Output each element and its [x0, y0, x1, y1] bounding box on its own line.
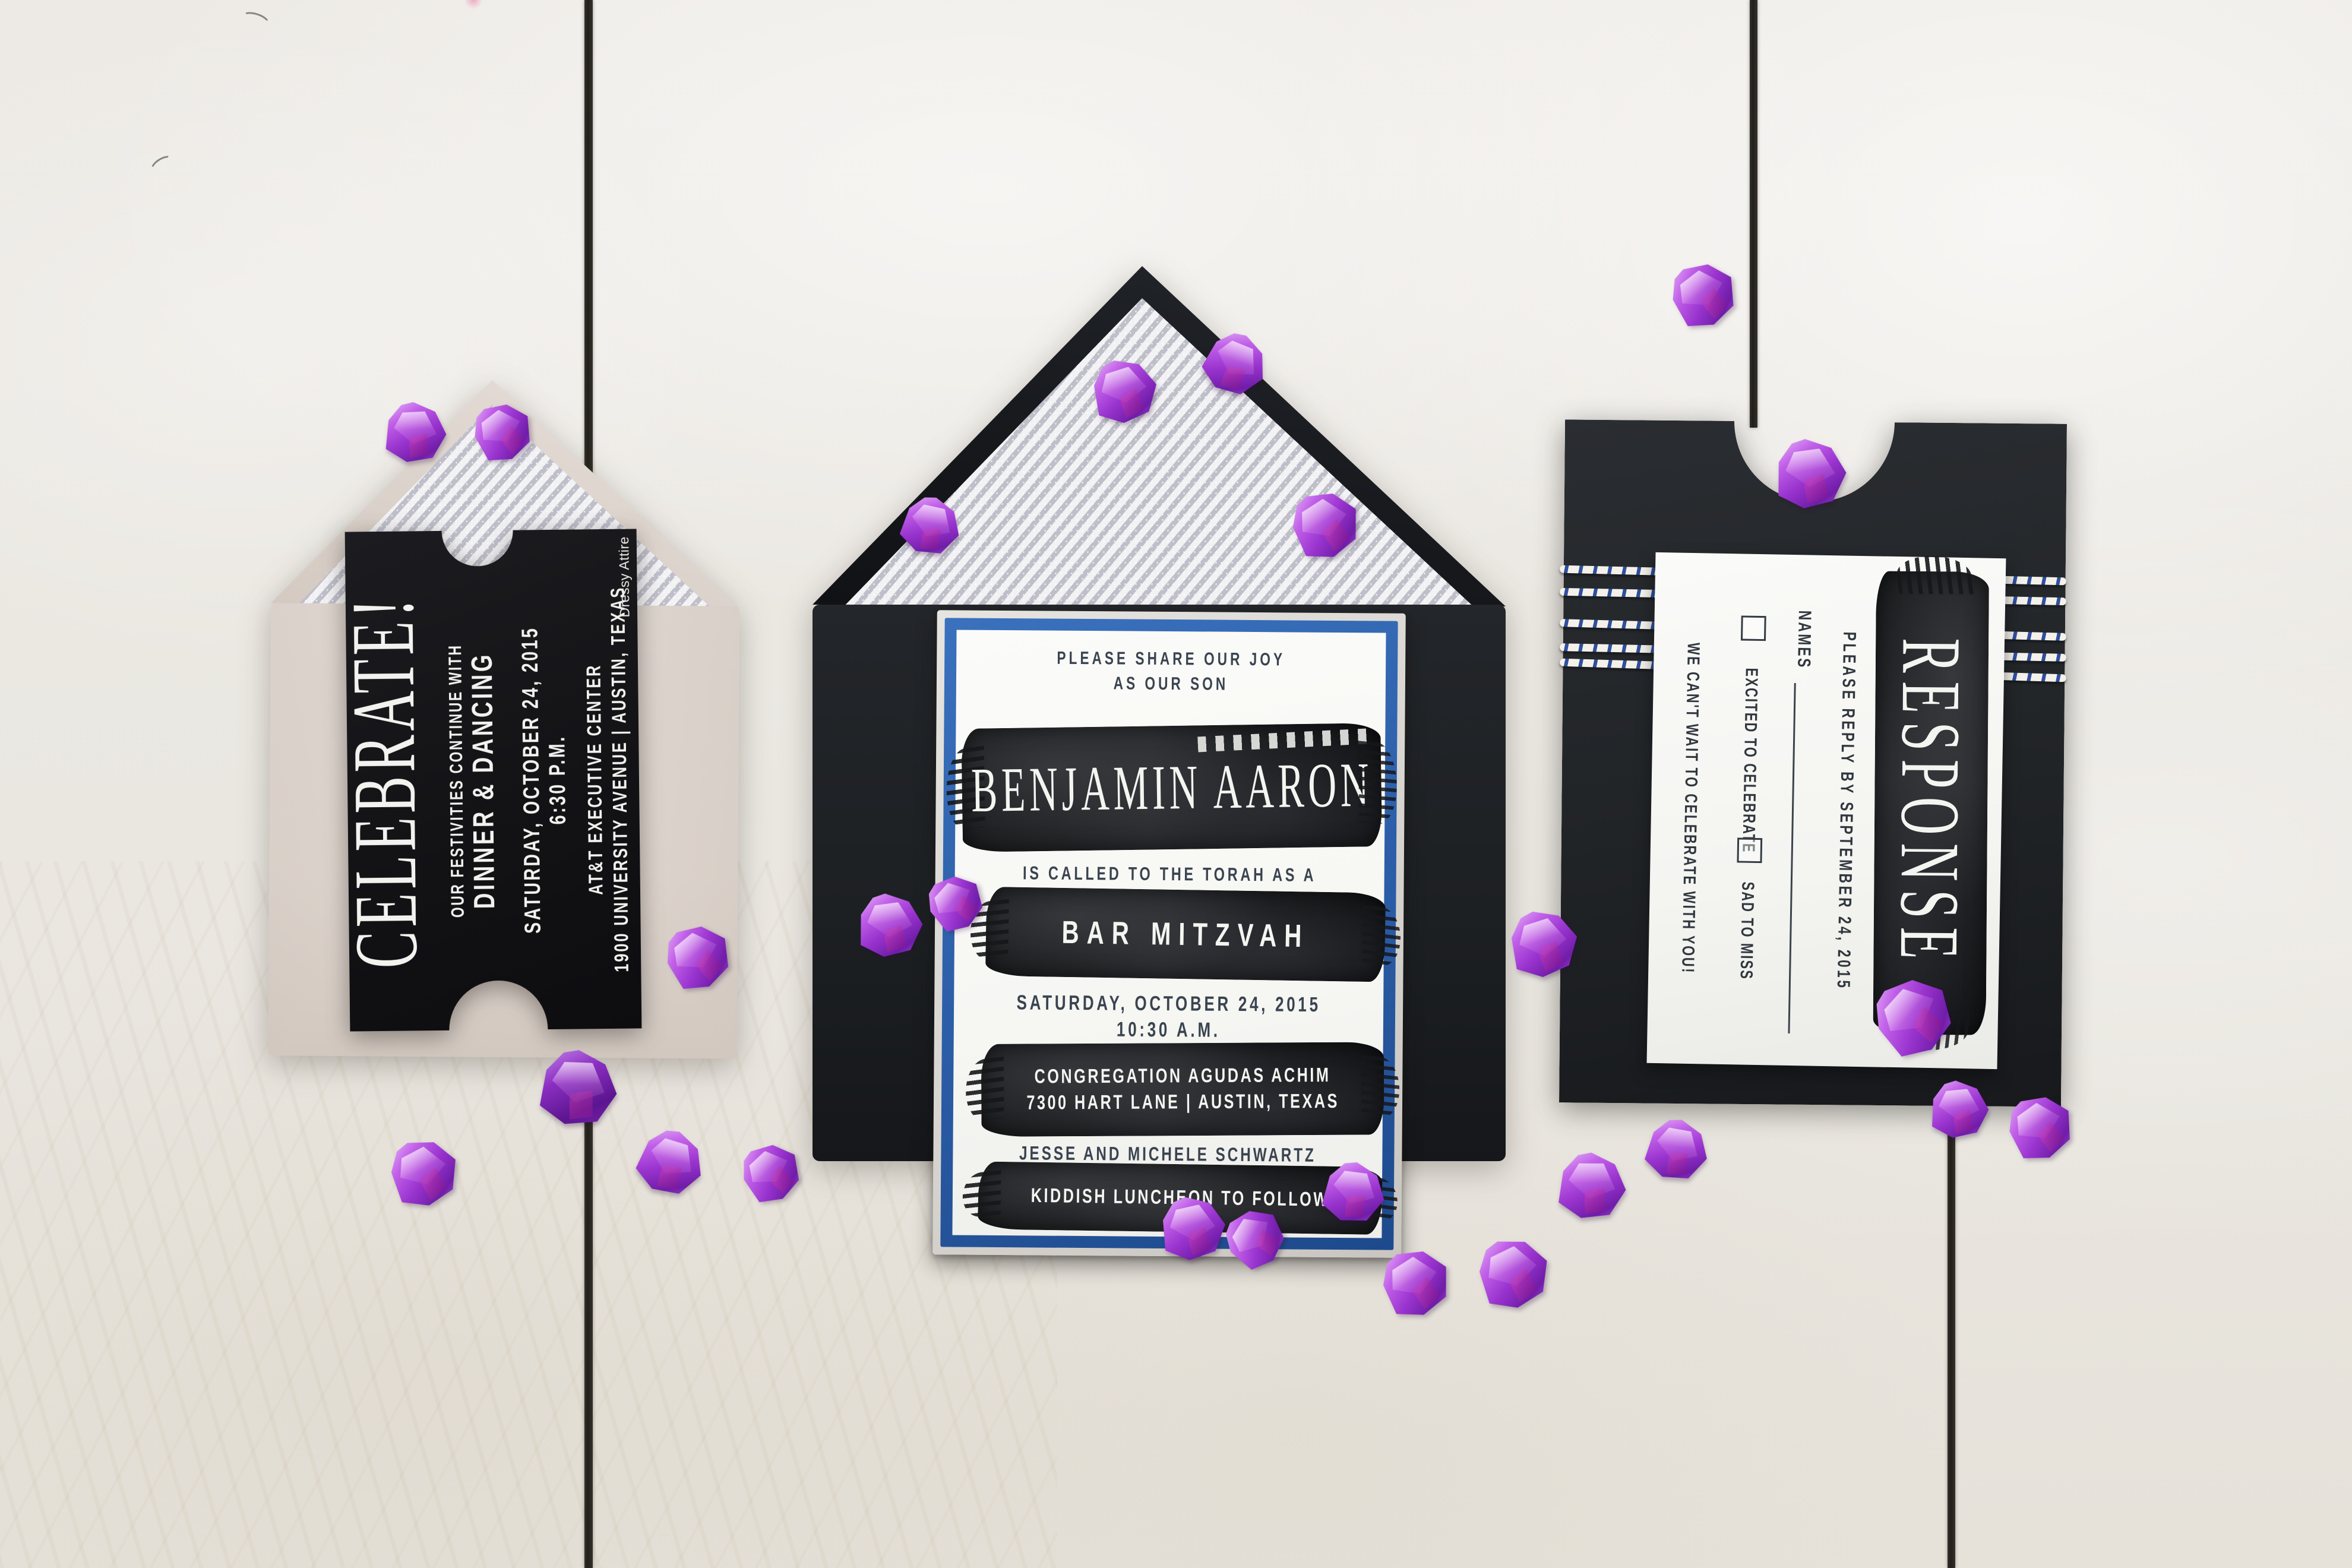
black-envelope-glitter-liner	[813, 266, 1506, 611]
grout-line-vertical-right-bottom	[1948, 1099, 1955, 1568]
checkbox-sad	[1737, 837, 1762, 863]
venue-brush-stroke: CONGREGATION AGUDAS ACHIM 7300 HART LANE…	[981, 1042, 1384, 1137]
celebrate-line-dinner-dancing: DINNER & DANCING	[464, 570, 502, 990]
celebrate-line-date: SATURDAY, OCTOBER 24, 2015	[516, 570, 546, 990]
purple-gem	[855, 890, 927, 963]
option-sad: SAD TO MISS	[1735, 837, 1762, 990]
honoree-name: BENJAMIN AARON	[970, 748, 1373, 827]
purple-gem	[1926, 1077, 1993, 1144]
venue-name: CONGREGATION AGUDAS ACHIM	[1035, 1064, 1331, 1089]
celebrate-line-address: 1900 UNIVERSITY AVENUE | AUSTIN, TEXAS	[606, 569, 633, 989]
invitation-intro-2: AS OUR SON	[974, 672, 1368, 696]
purple-gem	[1476, 1235, 1553, 1313]
purple-gem	[1094, 361, 1156, 423]
purple-gem	[1772, 435, 1851, 514]
invitation-called-line: IS CALLED TO THE TORAH AS A	[973, 862, 1367, 886]
response-footer: WE CAN'T WAIT TO CELEBRATE WITH YOU!	[1677, 594, 1705, 1023]
celebrate-ticket-card: CELEBRATE! OUR FESTIVITIES CONTINUE WITH…	[345, 529, 642, 1031]
option-excited-label: EXCITED TO CELEBRATE	[1738, 668, 1766, 853]
invitation-time: 10:30 A.M.	[972, 1017, 1365, 1044]
celebrate-line-venue: AT&T EXECUTIVE CENTER	[581, 569, 608, 989]
response-card-content: RESPONSE PLEASE REPLY BY SEPTEMBER 24, 2…	[1647, 552, 2006, 1069]
pink-smudge	[464, 0, 482, 10]
grout-line-vertical-right-top	[1750, 0, 1757, 428]
name-brush-stroke: BENJAMIN AARON	[961, 723, 1382, 852]
invitation-content: PLEASE SHARE OUR JOY AS OUR SON BENJAMIN…	[932, 610, 1406, 1257]
purple-gem	[1512, 912, 1577, 977]
purple-gem	[1160, 1196, 1228, 1263]
event-brush-stroke: BAR MITZVAH	[985, 887, 1386, 982]
celebrate-line-time: 6:30 P.M.	[542, 570, 573, 990]
names-row: NAMES	[1788, 605, 1815, 1033]
reply-by-line: PLEASE REPLY BY SEPTEMBER 24, 2015	[1832, 596, 1860, 1026]
venue-address: 7300 HART LANE | AUSTIN, TEXAS	[1026, 1090, 1339, 1115]
response-title: RESPONSE	[1881, 638, 1981, 968]
dressy-attire-note: Dressy Attire	[616, 536, 633, 618]
response-brush-stroke: RESPONSE	[1873, 571, 1989, 1035]
checkbox-excited	[1741, 615, 1766, 641]
option-excited: EXCITED TO CELEBRATE	[1737, 615, 1766, 871]
invitation-intro-1: PLEASE SHARE OUR JOY	[974, 647, 1368, 671]
names-write-in-line	[1788, 683, 1813, 1034]
names-label: NAMES	[1793, 610, 1814, 669]
celebrate-ticket-content: CELEBRATE! OUR FESTIVITIES CONTINUE WITH…	[345, 529, 642, 1031]
invitation-card: PLEASE SHARE OUR JOY AS OUR SON BENJAMIN…	[932, 610, 1406, 1257]
photo-scene: CELEBRATE! OUR FESTIVITIES CONTINUE WITH…	[0, 0, 2352, 1568]
option-sad-label: SAD TO MISS	[1736, 881, 1763, 980]
event-name: BAR MITZVAH	[1061, 914, 1310, 954]
celebrate-ticket-face: CELEBRATE! OUR FESTIVITIES CONTINUE WITH…	[345, 529, 642, 1031]
invitation-date: SATURDAY, OCTOBER 24, 2015	[972, 991, 1365, 1017]
response-card: RESPONSE PLEASE REPLY BY SEPTEMBER 24, 2…	[1647, 552, 2006, 1069]
purple-gem	[387, 1135, 462, 1210]
